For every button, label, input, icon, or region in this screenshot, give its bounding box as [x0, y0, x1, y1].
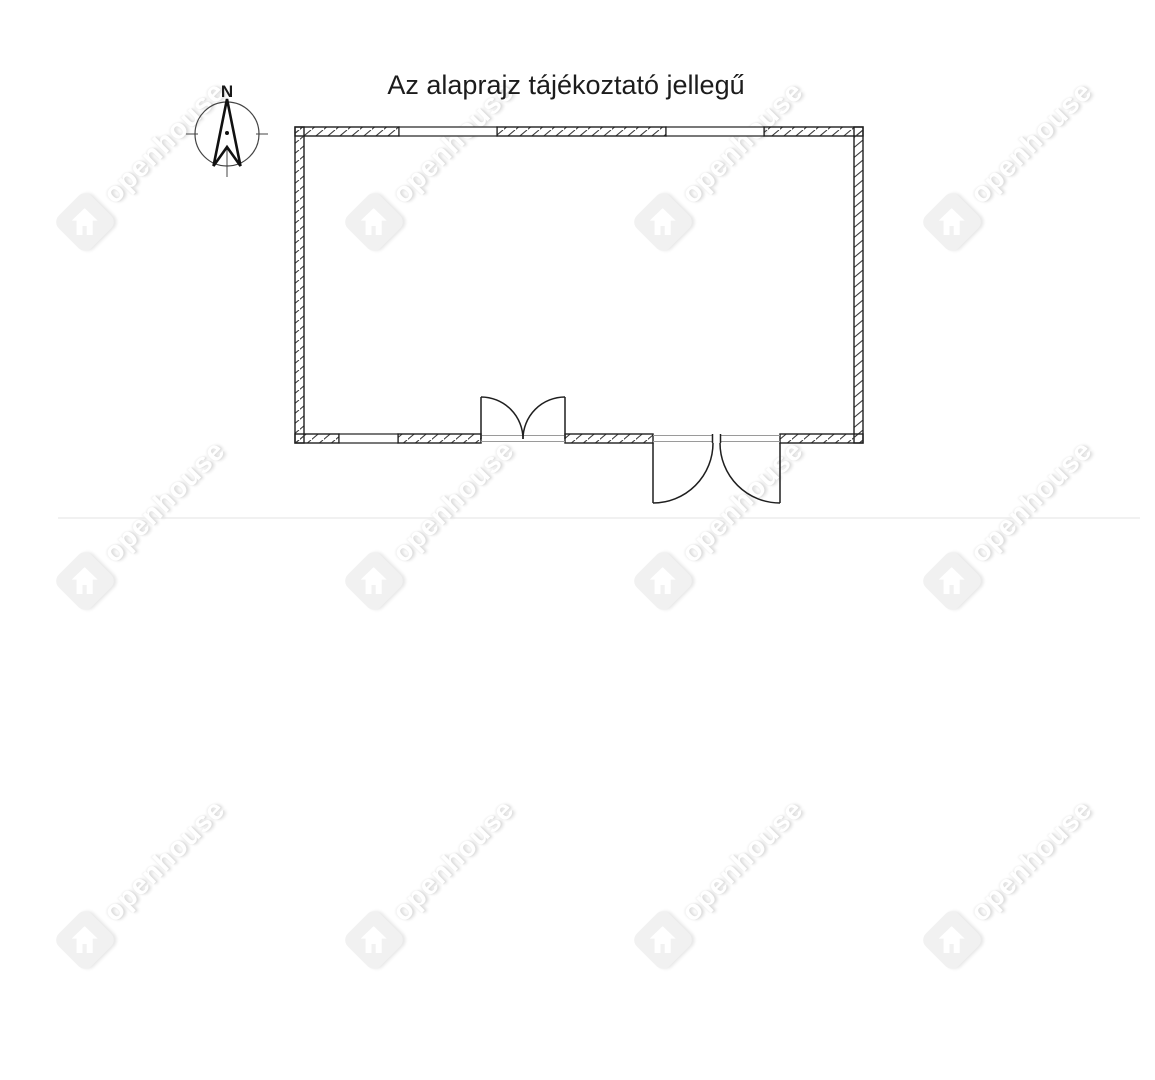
- exterior-walls: [295, 127, 863, 443]
- wall-bottom-2: [398, 434, 481, 443]
- wall-left: [295, 127, 304, 443]
- wall-top-right: [764, 127, 863, 136]
- double-door-inward: [481, 397, 565, 439]
- wall-bottom-4: [780, 434, 863, 443]
- door2-left-swing-arc: [653, 443, 713, 503]
- door1-left-swing-arc: [481, 397, 523, 439]
- wall-bottom-3: [565, 434, 653, 443]
- wall-top-middle: [497, 127, 666, 136]
- floor-plan: [295, 127, 863, 503]
- plan-disclaimer-title: Az alaprajz tájékoztató jellegű: [0, 70, 1132, 101]
- wall-bottom-1: [295, 434, 339, 443]
- door1-right-swing-arc: [523, 397, 565, 439]
- window-bottom: [339, 434, 398, 443]
- floor-plan-drawing: N: [0, 0, 1155, 1080]
- double-door-outward: [653, 434, 780, 503]
- compass-center-dot: [225, 131, 229, 135]
- door2-right-swing-arc: [720, 443, 780, 503]
- wall-top-left: [295, 127, 399, 136]
- window-top-right: [666, 127, 764, 136]
- wall-right: [854, 127, 863, 443]
- window-top-left: [399, 127, 497, 136]
- windows: [339, 127, 764, 443]
